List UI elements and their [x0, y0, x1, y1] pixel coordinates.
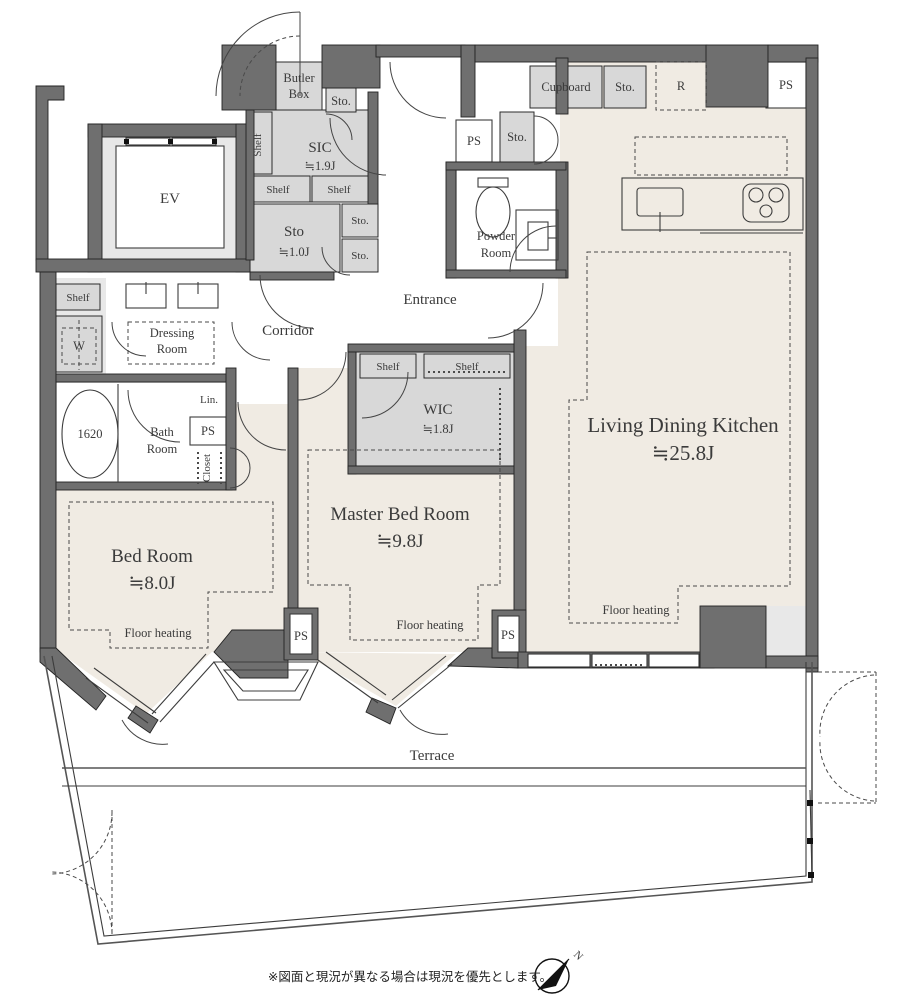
bed-label-2: ≒8.0J: [128, 573, 175, 594]
wall-ev-left: [88, 124, 102, 272]
terrace-label: Terrace: [410, 748, 455, 764]
wall-top-c: [376, 45, 465, 57]
master-label-2: ≒9.8J: [376, 531, 423, 552]
bath-label-2: Room: [147, 442, 178, 456]
closet-label: Closet: [201, 454, 213, 482]
kitchen-sto-label: Sto.: [507, 130, 527, 144]
sic-label-2: ≒1.9J: [305, 159, 336, 173]
butler-label-1: Butler: [283, 71, 315, 85]
wall-top-a: [222, 45, 276, 110]
powder-label-2: Room: [481, 246, 512, 260]
wall-powder-bottom: [446, 270, 566, 278]
wic-label-2: ≒1.8J: [423, 422, 454, 436]
entrance-label: Entrance: [403, 292, 457, 308]
master-label-1: Master Bed Room: [330, 504, 470, 525]
wall-ldk-left: [514, 330, 526, 652]
ldk-label-1: Living Dining Kitchen: [587, 413, 779, 437]
sto-box-2-label: Sto.: [351, 250, 369, 262]
fence-tick-3: [808, 872, 814, 878]
ev-door-tick3: [212, 139, 217, 144]
disclaimer-note: ※図面と現況が異なる場合は現況を優先とします。: [268, 969, 552, 984]
wall-corridor-top: [250, 272, 334, 280]
wall-bath-right: [226, 368, 236, 490]
washer-label: W: [73, 339, 85, 353]
sic-shelf-b-label: Shelf: [327, 184, 351, 196]
wic-label-1: WIC: [423, 402, 452, 418]
sto-room-label-2: ≒1.0J: [279, 245, 310, 259]
ps-b2-label: PS: [501, 628, 515, 642]
dressing-label-1: Dressing: [150, 326, 195, 340]
linen-label: Lin.: [200, 394, 218, 406]
bath-label-1: Bath: [150, 425, 174, 439]
ps-linen-label: PS: [201, 424, 215, 438]
butler-label-2: Box: [289, 87, 311, 101]
sto-box-1-label: Sto.: [351, 215, 369, 227]
fence-tick-2: [807, 838, 813, 844]
butler-box: [276, 62, 322, 110]
ps-hall-label: PS: [467, 134, 481, 148]
ldk-label-2: ≒25.8J: [652, 441, 715, 465]
fh-ldk-label: Floor heating: [602, 603, 670, 617]
ev-label: EV: [160, 191, 180, 207]
terrace-left-arc-1: [52, 812, 112, 874]
fence-tick-1: [807, 800, 813, 806]
wall-top-b: [322, 45, 380, 88]
floorplan-page: N EV Butler Box Sto. Shelf SIC ≒1.9J She…: [0, 0, 900, 1000]
ps-b1-label: PS: [294, 629, 308, 643]
terrace-right-arc-1: [820, 675, 874, 737]
terrace: [44, 656, 876, 944]
terrace-left-arc-2: [52, 872, 112, 934]
wic-shelf-1-label: Shelf: [376, 361, 400, 373]
ev-door-2: [172, 138, 216, 145]
wall-dressing-bath: [56, 374, 230, 382]
ev-door-tick2: [168, 139, 173, 144]
laundry-shelf-label: Shelf: [66, 292, 90, 304]
tub-label: 1620: [78, 427, 103, 441]
wall-entrance-south: [348, 344, 522, 352]
ldk-floor: [518, 58, 806, 652]
sic-label-1: SIC: [308, 140, 331, 156]
terrace-right-arc-2: [820, 740, 874, 801]
ldk-notch: [766, 606, 806, 656]
corridor-label: Corridor: [262, 323, 314, 339]
wall-br-chunk: [700, 606, 766, 668]
fh-master-label: Floor heating: [396, 618, 464, 632]
cupboard-sto-label: Sto.: [615, 80, 635, 94]
wall-right: [806, 58, 818, 672]
dressing-label-2: Room: [157, 342, 188, 356]
wall-sic-right: [368, 92, 378, 204]
bed-label-1: Bed Room: [111, 546, 193, 567]
wall-left: [40, 272, 56, 652]
ev-door-1: [126, 138, 170, 145]
wall-powder-top: [446, 162, 566, 170]
ldk-window-3: [649, 654, 699, 667]
wic-shelf-2-label: Shelf: [455, 361, 479, 373]
wall-ev-top: [88, 124, 250, 137]
wall-top-e: [475, 45, 707, 62]
master-bay-floor: [300, 652, 456, 706]
butler-sto-label: Sto.: [331, 94, 351, 108]
sic-shelf-a-label: Shelf: [266, 184, 290, 196]
sic-shelf-left-label: Shelf: [252, 133, 264, 157]
fh-bed-label: Floor heating: [124, 626, 192, 640]
powder-label-1: Powder: [477, 229, 516, 243]
compass-n-label: N: [571, 949, 585, 963]
wall-ev-bottom: [36, 259, 250, 272]
ps-topright-label: PS: [779, 78, 793, 92]
master-terrace-door-arc: [400, 710, 448, 734]
ldk-window-1: [528, 654, 590, 667]
wall-wic-bottom: [348, 466, 522, 474]
ev-door-tick1: [124, 139, 129, 144]
wall-powder-left: [446, 162, 456, 278]
fridge-label: R: [677, 79, 686, 93]
wall-top-f: [706, 45, 768, 107]
sto-room-label-1: Sto: [284, 224, 304, 240]
wall-sic-left: [246, 110, 254, 260]
wall-br-bottom: [766, 656, 818, 668]
wall-top-d: [461, 45, 475, 117]
wall-bath-bed: [56, 482, 232, 490]
floorplan-svg: N EV Butler Box Sto. Shelf SIC ≒1.9J She…: [0, 0, 900, 1000]
terrace-outline-inner: [52, 656, 806, 936]
wall-topleft-slit: [36, 86, 64, 260]
cupboard-label: Cupboard: [541, 80, 591, 94]
wall-wic-left: [348, 352, 356, 474]
